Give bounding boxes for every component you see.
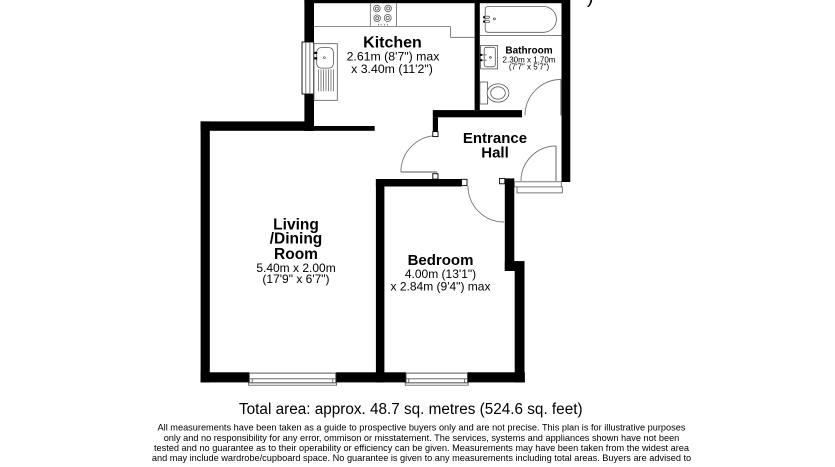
svg-text:(7'7" x 5'7"): (7'7" x 5'7")	[509, 63, 550, 72]
svg-text:Hall: Hall	[481, 144, 509, 161]
svg-text:x 3.40m (11'2"): x 3.40m (11'2")	[351, 62, 433, 76]
svg-text:only and no responsibility for: only and no responsibility for any error…	[164, 433, 680, 443]
svg-text:and may include wardrobe/cupbo: and may include wardrobe/cupboard space.…	[152, 453, 691, 463]
svg-text:Total area: approx. 48.7 sq. m: Total area: approx. 48.7 sq. metres (524…	[239, 401, 583, 418]
svg-text:(17'9" x 6'7"): (17'9" x 6'7")	[262, 272, 329, 286]
svg-text:x 2.84m (9'4") max: x 2.84m (9'4") max	[391, 279, 491, 293]
svg-text:All measurements have been tak: All measurements have been taken as a gu…	[158, 423, 686, 433]
svg-text:tested and no guarantee as to: tested and no guarantee as to their oper…	[154, 443, 690, 453]
svg-text:): )	[587, 0, 594, 8]
